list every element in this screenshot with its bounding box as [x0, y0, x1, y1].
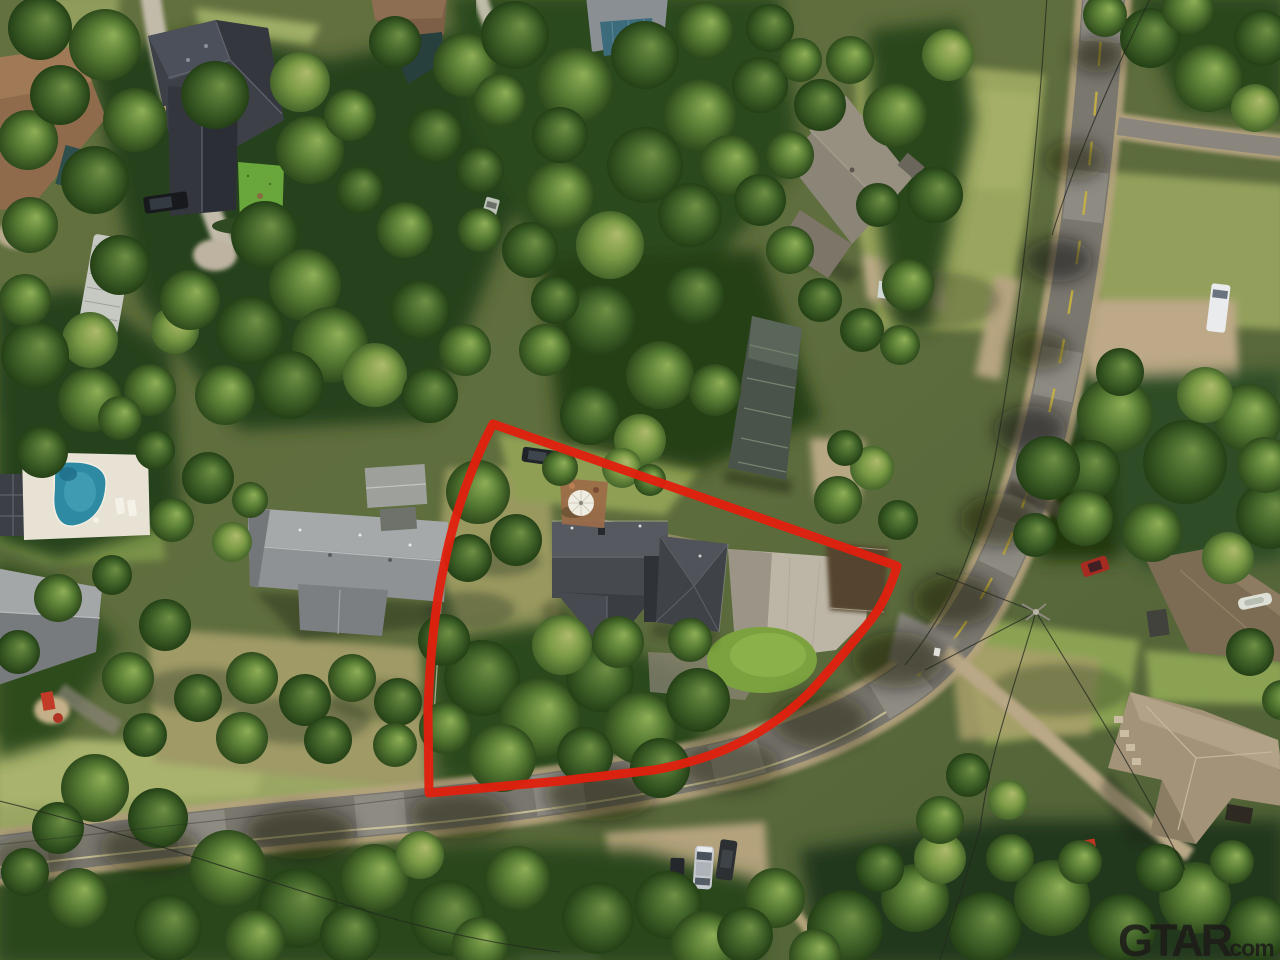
tree-crown — [16, 426, 68, 478]
tree-crown — [2, 197, 58, 253]
tree-crown — [328, 654, 376, 702]
tree-crown — [1096, 348, 1144, 396]
tree-crown — [916, 796, 964, 844]
tree-crown — [532, 107, 588, 163]
tree-crown — [390, 280, 450, 340]
tree-crown — [826, 36, 874, 84]
tree-crown — [61, 146, 129, 214]
tree-crown — [396, 831, 444, 879]
tree-crown — [30, 65, 90, 125]
tree-crown — [369, 16, 421, 68]
tree-crown — [986, 834, 1034, 882]
tree-crown — [439, 324, 491, 376]
tree-crown — [576, 211, 644, 279]
aerial-photo: GTAR .com — [0, 0, 1280, 960]
tree-crown — [526, 161, 594, 229]
tree-crown — [658, 183, 722, 247]
tree-crown — [1174, 44, 1242, 112]
tree-crown — [1136, 844, 1184, 892]
tree-crown — [486, 846, 550, 910]
tree-crown — [226, 652, 278, 704]
tree-crown — [689, 364, 741, 416]
tree-crown — [562, 882, 634, 954]
tree-crown — [880, 325, 920, 365]
tree-crown — [377, 202, 433, 258]
tree-crown — [34, 574, 82, 622]
tree-crown — [1202, 532, 1254, 584]
tree-crown — [216, 712, 268, 764]
tree-crown — [150, 498, 194, 542]
tree-crown — [532, 615, 592, 675]
tree-crown — [374, 678, 422, 726]
tree-crown — [32, 802, 84, 854]
tree-crown — [1226, 628, 1274, 676]
tree-crown — [794, 79, 846, 131]
tree-crown — [988, 780, 1028, 820]
tree-crown — [402, 367, 458, 423]
tree-crown — [102, 652, 154, 704]
tree-crown — [677, 2, 733, 58]
tree-crown — [798, 278, 842, 322]
tree-crown — [766, 131, 814, 179]
tree-crown — [481, 1, 549, 69]
tree-crown — [0, 274, 51, 326]
tree-crown — [626, 341, 694, 409]
tree-crown — [668, 618, 712, 662]
tree-crown — [98, 396, 142, 440]
tree-crown — [134, 894, 202, 960]
watermark-suffix: .com — [1224, 935, 1274, 960]
tree-crown — [1013, 513, 1057, 557]
tree-crown — [734, 174, 786, 226]
tree-crown — [474, 74, 526, 126]
tree-crown — [1, 848, 49, 896]
tree-crown — [256, 351, 324, 419]
tree-crown — [62, 312, 118, 368]
tree-crown — [1058, 840, 1102, 884]
tree-crown — [69, 9, 141, 81]
tree-crown — [878, 500, 918, 540]
tree-crown — [90, 235, 150, 295]
tree-crown — [103, 88, 167, 152]
tree-crown — [560, 385, 620, 445]
tree-crown — [1016, 436, 1080, 500]
tree-crown — [181, 61, 249, 129]
tree-crown — [922, 29, 974, 81]
tree-crown — [490, 514, 542, 566]
tree-crown — [343, 343, 407, 407]
tree-crown — [882, 259, 934, 311]
tree-crown — [531, 276, 579, 324]
tree-crown — [135, 430, 175, 470]
tree-crown — [1231, 84, 1279, 132]
tree-crown — [502, 222, 558, 278]
tree-crown — [814, 476, 862, 524]
tree-crown — [195, 365, 255, 425]
tree-crown — [48, 868, 108, 928]
tree-crown — [827, 430, 863, 466]
tree-crown — [139, 599, 191, 651]
tree-crown — [458, 208, 502, 252]
tree-crown — [665, 265, 725, 325]
tree-crown — [1122, 502, 1182, 562]
tree-crown — [373, 723, 417, 767]
tree-crown — [856, 183, 900, 227]
tree-crown — [324, 89, 376, 141]
tree-crown — [418, 614, 470, 666]
tree-crown — [182, 452, 234, 504]
tree-crown — [840, 308, 884, 352]
tree-crown — [1177, 367, 1233, 423]
tree-crown — [1143, 420, 1227, 504]
tree-crown — [160, 270, 220, 330]
tree-crown — [519, 324, 571, 376]
tree-crown — [92, 555, 132, 595]
tree-crown — [856, 844, 904, 892]
tree-crown — [778, 38, 822, 82]
tree-crown — [946, 753, 990, 797]
tree-crown — [1210, 840, 1254, 884]
tree-crown — [907, 167, 963, 223]
watermark-brand: GTAR — [1118, 915, 1233, 960]
tree-crown — [1057, 490, 1113, 546]
tree-crown — [592, 616, 644, 668]
tree-crown — [666, 668, 730, 732]
tree-crown — [863, 83, 927, 147]
tree-crown — [456, 146, 504, 194]
tree-crown — [336, 166, 384, 214]
tree-crown — [611, 21, 679, 89]
tree-crown — [212, 522, 252, 562]
tree-crown — [304, 716, 352, 764]
tree-crown — [407, 107, 463, 163]
tree-crown — [232, 482, 268, 518]
tree-crown — [216, 296, 284, 364]
tree-crown — [1, 321, 69, 389]
tree-crown — [174, 674, 222, 722]
tree-crown — [270, 52, 330, 112]
silver-suv — [692, 845, 714, 889]
tree-crown — [766, 226, 814, 274]
tree-crown — [123, 713, 167, 757]
